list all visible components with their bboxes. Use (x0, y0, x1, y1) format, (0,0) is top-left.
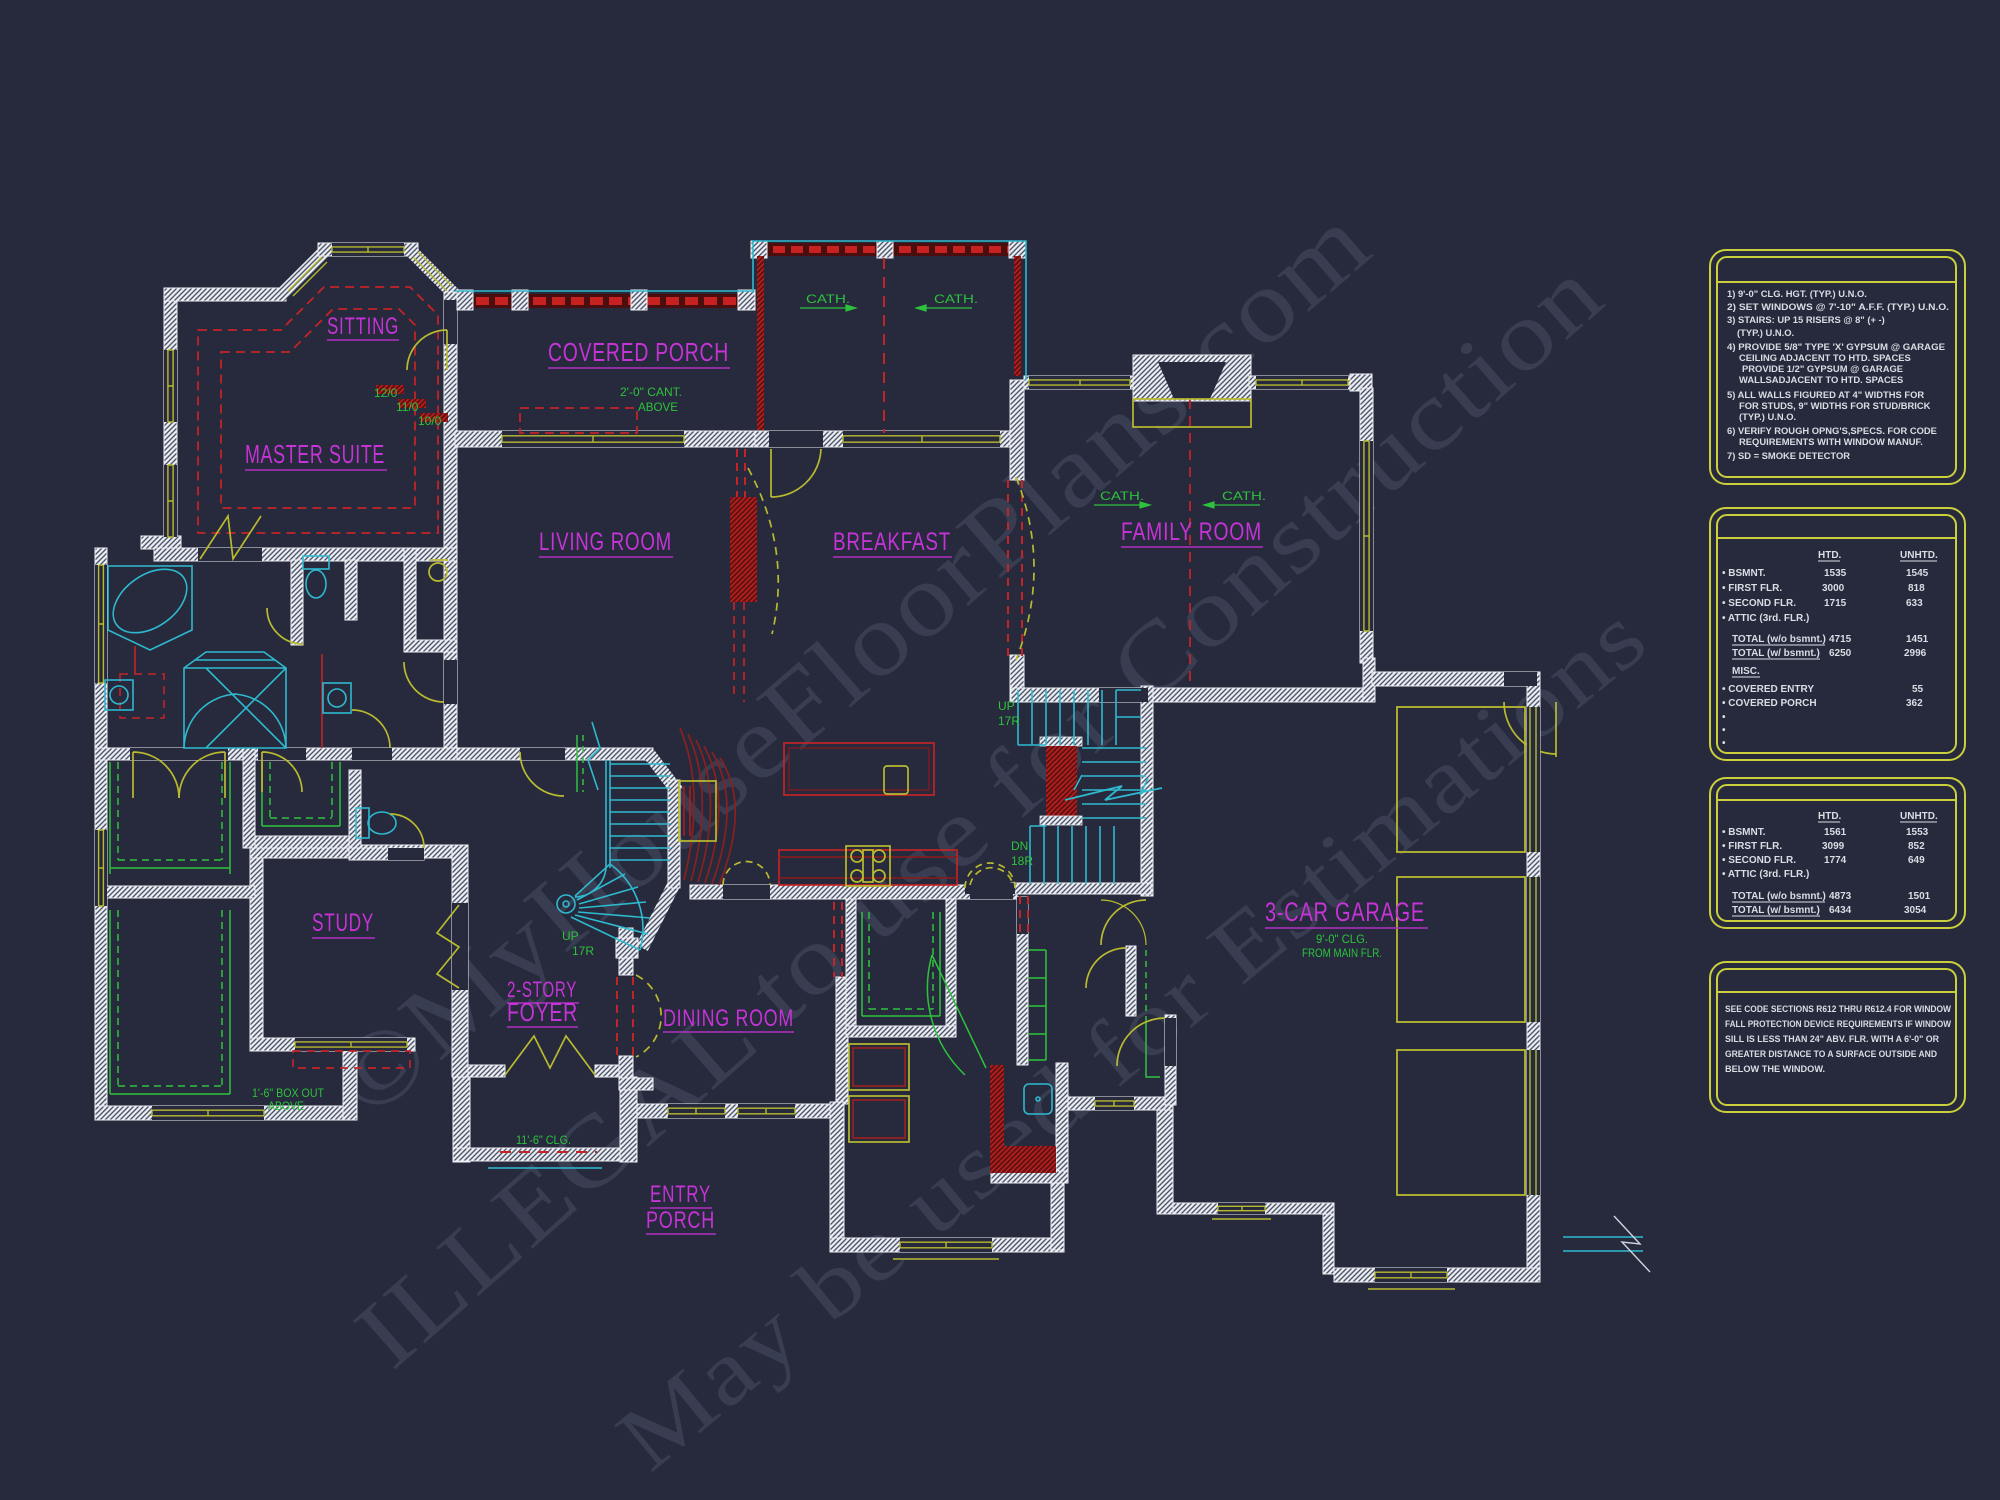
svg-text:4) PROVIDE 5/8" TYPE 'X' GYPSU: 4) PROVIDE 5/8" TYPE 'X' GYPSUM @ GARAGE (1727, 341, 1945, 352)
svg-text:1774: 1774 (1824, 855, 1847, 866)
svg-text:1451: 1451 (1906, 634, 1929, 645)
svg-text:SEE CODE SECTIONS R612 THRU R6: SEE CODE SECTIONS R612 THRU R612.4 FOR W… (1725, 1004, 1951, 1014)
svg-text:• ATTIC (3rd. FLR.): • ATTIC (3rd. FLR.) (1722, 869, 1809, 880)
svg-text:2'-0" CANT.: 2'-0" CANT. (620, 385, 682, 399)
svg-text:PROVIDE 1/2" GYPSUM @ GARAGE: PROVIDE 1/2" GYPSUM @ GARAGE (1742, 363, 1903, 374)
svg-text:TOTAL (w/o bsmnt.): TOTAL (w/o bsmnt.) (1732, 891, 1826, 902)
svg-text:1'-6" BOX OUT: 1'-6" BOX OUT (252, 1086, 325, 1100)
svg-text:FAMILY ROOM: FAMILY ROOM (1121, 518, 1262, 546)
svg-text:REQUIREMENTS WITH WINDOW MANUF: REQUIREMENTS WITH WINDOW MANUF. (1739, 436, 1923, 447)
svg-text:1) 9'-0" CLG. HGT. (TYP.) U.N: 1) 9'-0" CLG. HGT. (TYP.) U.N.O. (1727, 288, 1867, 299)
svg-text:(TYP.) U.N.O.: (TYP.) U.N.O. (1737, 327, 1794, 338)
svg-text:•: • (1722, 712, 1726, 723)
svg-text:6434: 6434 (1829, 905, 1852, 916)
svg-text:5) ALL WALLS FIGURED AT 4" WID: 5) ALL WALLS FIGURED AT 4" WIDTHS FOR (1727, 389, 1924, 400)
svg-text:FOYER: FOYER (507, 997, 578, 1027)
svg-text:DN: DN (1011, 839, 1028, 853)
svg-text:1501: 1501 (1908, 891, 1931, 902)
svg-text:(TYP.) U.N.O.: (TYP.) U.N.O. (1739, 411, 1796, 422)
svg-text:LIVING ROOM: LIVING ROOM (539, 528, 672, 556)
svg-text:TOTAL (w/ bsmnt.): TOTAL (w/ bsmnt.) (1732, 648, 1820, 659)
svg-text:STUDY: STUDY (312, 909, 374, 937)
svg-text:TOTAL (w/ bsmnt.): TOTAL (w/ bsmnt.) (1732, 905, 1820, 916)
svg-text:362: 362 (1906, 698, 1923, 709)
svg-text:FOR STUDS, 9" WIDTHS FOR STUD/: FOR STUDS, 9" WIDTHS FOR STUD/BRICK (1739, 400, 1931, 411)
svg-text:•: • (1722, 725, 1726, 736)
svg-text:• SECOND FLR.: • SECOND FLR. (1722, 598, 1796, 609)
svg-text:CATH.: CATH. (1100, 489, 1144, 503)
svg-text:MISC.: MISC. (1732, 666, 1760, 677)
svg-text:FALL PROTECTION DEVICE REQUIRE: FALL PROTECTION DEVICE REQUIREMENTS IF W… (1725, 1019, 1951, 1029)
svg-text:11/0: 11/0 (396, 400, 419, 414)
svg-text:• COVERED ENTRY: • COVERED ENTRY (1722, 684, 1814, 695)
svg-text:3099: 3099 (1822, 841, 1845, 852)
svg-text:TOTAL (w/o bsmnt.): TOTAL (w/o bsmnt.) (1732, 634, 1826, 645)
svg-text:1535: 1535 (1824, 568, 1847, 579)
svg-text:• BSMNT.: • BSMNT. (1722, 827, 1766, 838)
svg-text:• ATTIC (3rd. FLR.): • ATTIC (3rd. FLR.) (1722, 613, 1809, 624)
svg-text:CATH.: CATH. (1222, 489, 1266, 503)
svg-text:852: 852 (1908, 841, 1925, 852)
svg-text:CATH.: CATH. (934, 292, 978, 306)
svg-text:3000: 3000 (1822, 583, 1845, 594)
svg-text:17R: 17R (998, 714, 1020, 728)
svg-text:3) STAIRS: UP 15 RISERS @ 8" (: 3) STAIRS: UP 15 RISERS @ 8" (+ -) (1727, 314, 1885, 325)
svg-text:WALLSADJACENT TO HTD. SPACES: WALLSADJACENT TO HTD. SPACES (1739, 374, 1903, 385)
svg-text:3054: 3054 (1904, 905, 1927, 916)
svg-text:3-CAR GARAGE: 3-CAR GARAGE (1265, 897, 1425, 927)
svg-text:PORCH: PORCH (646, 1207, 715, 1234)
svg-text:UP: UP (562, 929, 579, 943)
svg-text:12/0: 12/0 (374, 386, 398, 400)
svg-text:18R: 18R (1011, 854, 1033, 868)
svg-text:4873: 4873 (1829, 891, 1852, 902)
svg-text:UP: UP (998, 699, 1015, 713)
svg-text:ABOVE: ABOVE (268, 1099, 304, 1113)
svg-text:633: 633 (1906, 598, 1923, 609)
svg-text:55: 55 (1912, 684, 1924, 695)
svg-text:4715: 4715 (1829, 634, 1852, 645)
svg-text:• FIRST FLR.: • FIRST FLR. (1722, 841, 1782, 852)
svg-text:CATH.: CATH. (806, 292, 850, 306)
svg-text:2) SET WINDOWS @ 7'-10" A.F.F.: 2) SET WINDOWS @ 7'-10" A.F.F. (TYP.) U.… (1727, 301, 1949, 312)
svg-text:• FIRST FLR.: • FIRST FLR. (1722, 583, 1782, 594)
svg-text:COVERED PORCH: COVERED PORCH (548, 337, 729, 367)
svg-text:MASTER SUITE: MASTER SUITE (245, 439, 385, 469)
svg-text:CEILING ADJACENT TO HTD. SPACE: CEILING ADJACENT TO HTD. SPACES (1739, 352, 1911, 363)
svg-text:•: • (1722, 738, 1726, 749)
svg-text:10/0: 10/0 (418, 414, 442, 428)
svg-text:DINING ROOM: DINING ROOM (663, 1005, 794, 1032)
svg-text:• SECOND FLR.: • SECOND FLR. (1722, 855, 1796, 866)
svg-text:UNHTD.: UNHTD. (1900, 811, 1938, 822)
svg-text:ENTRY: ENTRY (650, 1181, 711, 1208)
svg-text:1561: 1561 (1824, 827, 1847, 838)
svg-text:7) SD = SMOKE DETECTOR: 7) SD = SMOKE DETECTOR (1727, 450, 1850, 461)
svg-text:BREAKFAST: BREAKFAST (833, 528, 951, 556)
svg-text:1553: 1553 (1906, 827, 1929, 838)
svg-text:1715: 1715 (1824, 598, 1847, 609)
svg-text:ABOVE: ABOVE (638, 400, 678, 414)
svg-text:BELOW THE WINDOW.: BELOW THE WINDOW. (1725, 1064, 1825, 1074)
svg-text:SILL IS LESS THAN 24" ABV. FLR: SILL IS LESS THAN 24" ABV. FLR. WITH A 6… (1725, 1034, 1939, 1044)
svg-text:FROM MAIN FLR.: FROM MAIN FLR. (1302, 946, 1382, 960)
svg-text:6) VERIFY ROUGH OPNG'S,SPECS.: 6) VERIFY ROUGH OPNG'S,SPECS. FOR CODE (1727, 425, 1937, 436)
svg-text:HTD.: HTD. (1818, 550, 1842, 561)
svg-text:9'-0" CLG.: 9'-0" CLG. (1316, 932, 1368, 946)
svg-text:11'-6" CLG.: 11'-6" CLG. (516, 1133, 571, 1147)
svg-text:1545: 1545 (1906, 568, 1929, 579)
svg-text:2996: 2996 (1904, 648, 1927, 659)
svg-text:17R: 17R (572, 944, 594, 958)
svg-text:HTD.: HTD. (1818, 811, 1842, 822)
svg-text:• BSMNT.: • BSMNT. (1722, 568, 1766, 579)
svg-text:6250: 6250 (1829, 648, 1852, 659)
svg-text:649: 649 (1908, 855, 1925, 866)
svg-text:UNHTD.: UNHTD. (1900, 550, 1938, 561)
svg-text:818: 818 (1908, 583, 1925, 594)
svg-text:• COVERED PORCH: • COVERED PORCH (1722, 698, 1817, 709)
svg-text:SITTING: SITTING (327, 313, 399, 340)
svg-text:GREATER DISTANCE TO A SURFACE: GREATER DISTANCE TO A SURFACE OUTSIDE AN… (1725, 1049, 1937, 1059)
